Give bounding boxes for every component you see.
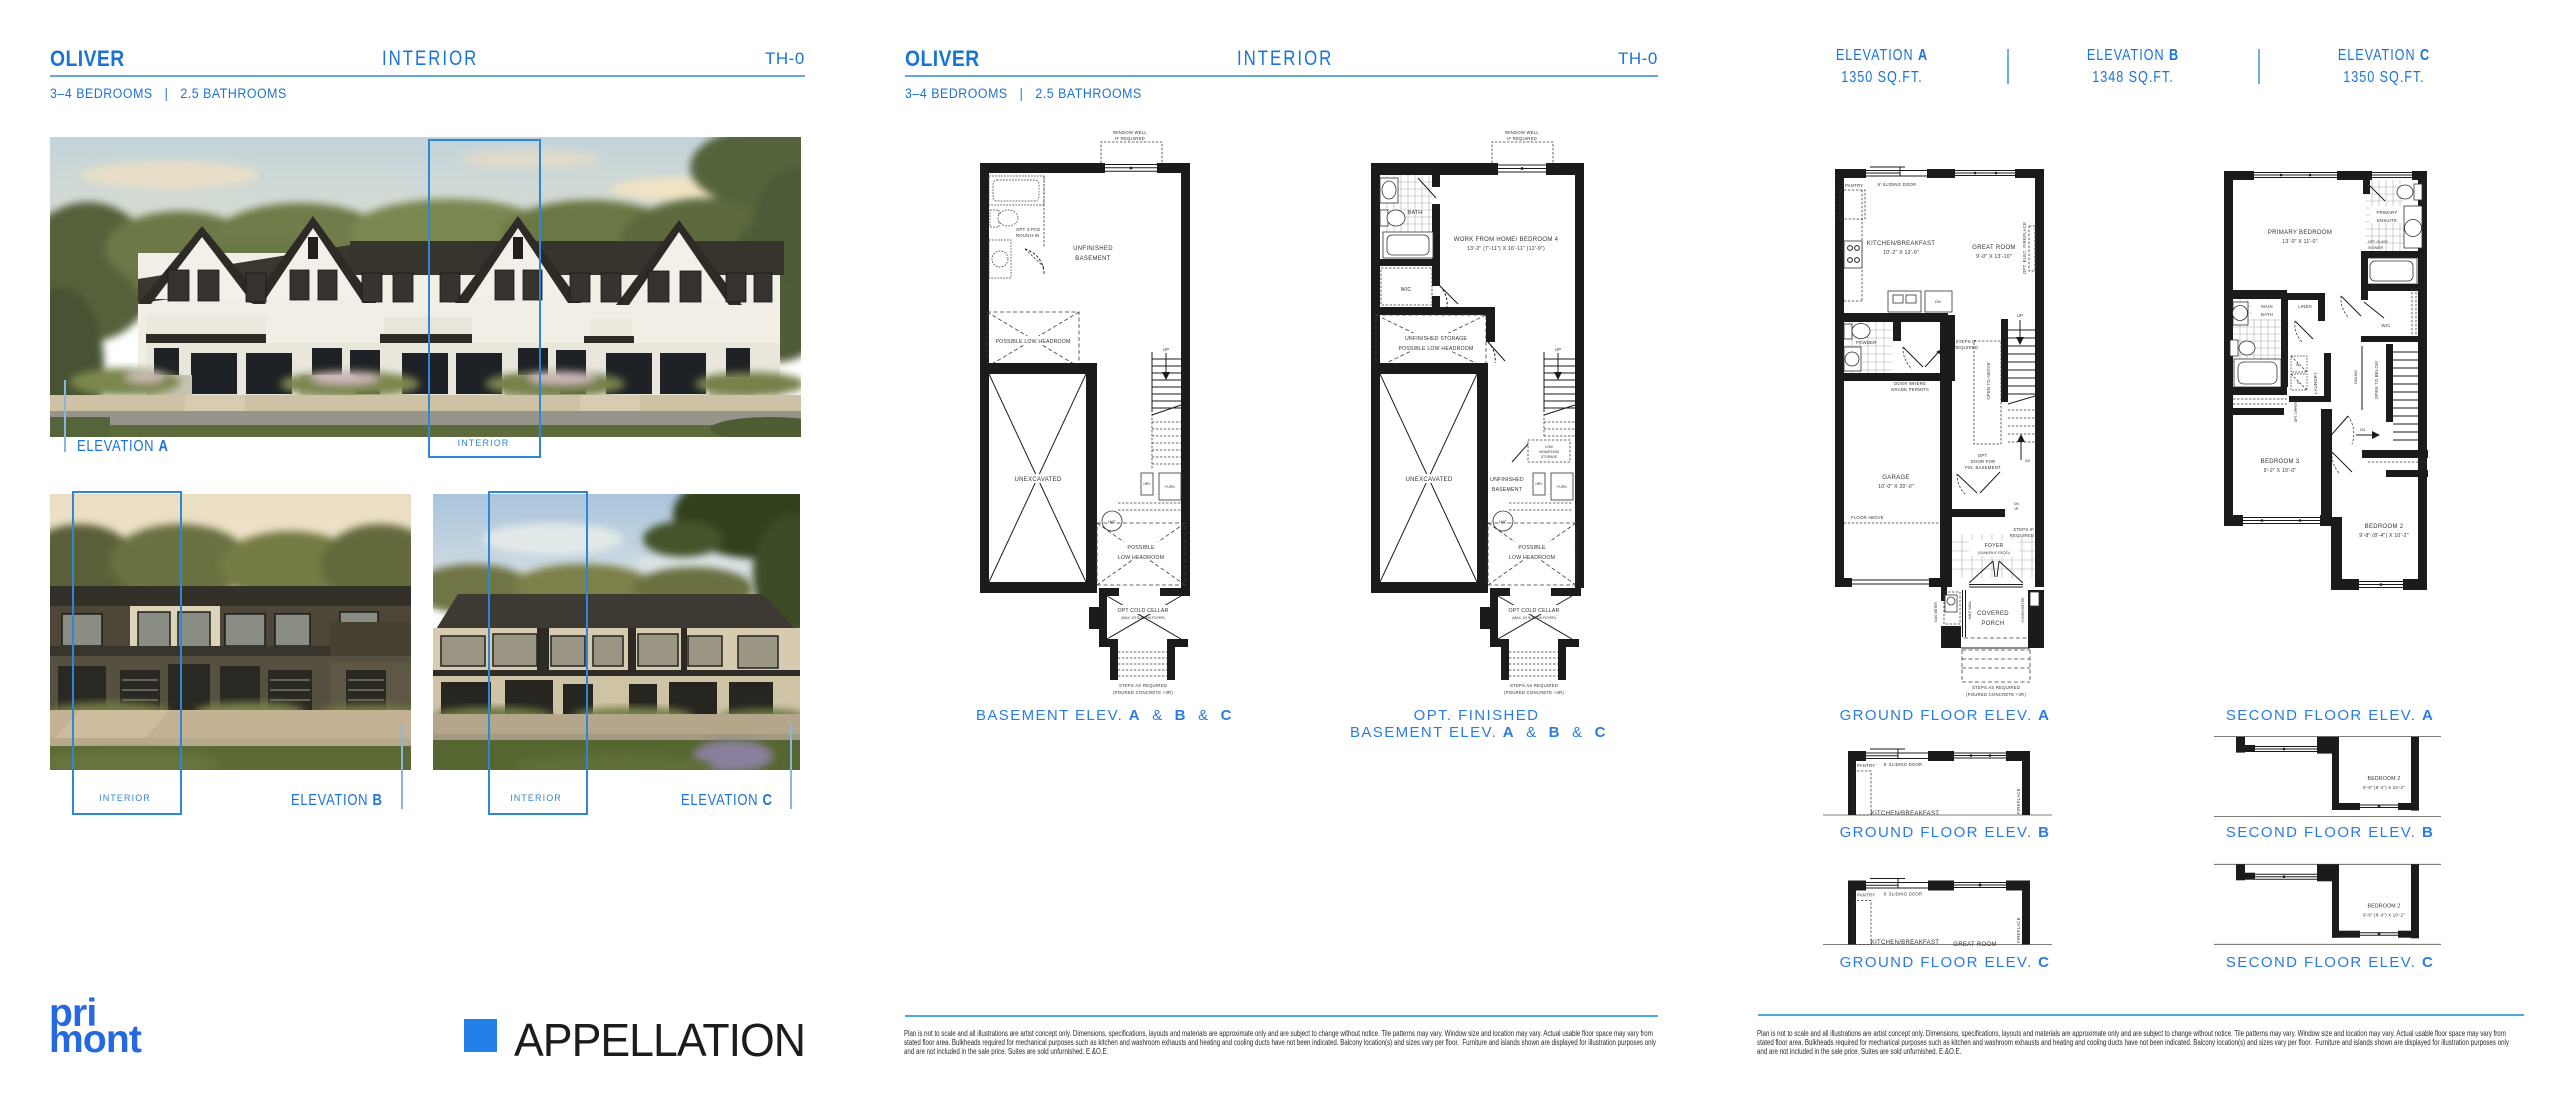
svg-text:9'-8" (8'-4") X 10'-2": 9'-8" (8'-4") X 10'-2" xyxy=(2359,533,2409,539)
svg-text:DOOR FOR: DOOR FOR xyxy=(1971,459,1996,464)
svg-text:(SUNKEN IF REQ'D): (SUNKEN IF REQ'D) xyxy=(1978,551,2010,555)
svg-text:LOW HEADROOM: LOW HEADROOM xyxy=(1118,555,1164,561)
svg-text:GRADE PERMITS: GRADE PERMITS xyxy=(1891,387,1929,392)
svg-text:KITCHEN/BREAKFAST: KITCHEN/BREAKFAST xyxy=(1871,811,1939,817)
svg-text:STEPS IF: STEPS IF xyxy=(2013,527,2034,532)
svg-text:9'-8" (8'-4") X 10'-2": 9'-8" (8'-4") X 10'-2" xyxy=(2363,913,2405,918)
svg-text:UNEXCAVATED: UNEXCAVATED xyxy=(1406,477,1453,483)
svg-text:IF REQUIRED: IF REQUIRED xyxy=(1115,136,1145,141)
svg-text:RAILING: RAILING xyxy=(2354,370,2358,384)
svg-text:POWDER: POWDER xyxy=(1856,340,1877,345)
svg-text:HALF WALL: HALF WALL xyxy=(1968,601,1972,620)
svg-text:13'-2" (7'-11") X 16'-11" (12': 13'-2" (7'-11") X 16'-11" (12'-9") xyxy=(1467,246,1545,252)
svg-text:FIREPLACE: FIREPLACE xyxy=(2016,788,2021,814)
svg-text:(MAX. 1R SUNKEN FOYER): (MAX. 1R SUNKEN FOYER) xyxy=(1512,616,1556,620)
svg-text:OPEN TO ABOVE: OPEN TO ABOVE xyxy=(1986,362,1991,400)
svg-text:6' SLIDING DOOR: 6' SLIDING DOOR xyxy=(1884,762,1923,767)
svg-text:PANTRY: PANTRY xyxy=(1845,183,1863,188)
svg-text:UNFINISHED STORAGE: UNFINISHED STORAGE xyxy=(1405,336,1467,342)
svg-text:WIC: WIC xyxy=(2382,323,2391,328)
svg-text:FIN. BASEMENT: FIN. BASEMENT xyxy=(1965,465,2001,470)
svg-text:UNFINISHED: UNFINISHED xyxy=(1073,246,1113,252)
svg-text:BATH: BATH xyxy=(1408,210,1422,216)
svg-text:DN: DN xyxy=(2360,428,2365,432)
svg-text:KITCHEN/BREAKFAST: KITCHEN/BREAKFAST xyxy=(1867,241,1935,247)
svg-text:9'-0" X 13'-10": 9'-0" X 13'-10" xyxy=(1976,254,2012,260)
svg-text:MAIN: MAIN xyxy=(2261,304,2273,309)
svg-text:POSSIBLE LOW HEADROOM: POSSIBLE LOW HEADROOM xyxy=(1398,346,1473,352)
svg-text:SHOWER: SHOWER xyxy=(2368,246,2384,250)
svg-text:ENSUITE: ENSUITE xyxy=(2377,218,2397,223)
svg-text:PRIMARY BEDROOM: PRIMARY BEDROOM xyxy=(2268,230,2332,236)
svg-text:9'-8" (8'-4") X 10'-2": 9'-8" (8'-4") X 10'-2" xyxy=(2363,785,2405,790)
svg-text:GARAGE: GARAGE xyxy=(1882,475,1909,481)
svg-text:POSSIBLE LOW HEADROOM: POSSIBLE LOW HEADROOM xyxy=(995,339,1070,345)
svg-text:STEPS IF: STEPS IF xyxy=(1956,339,1977,344)
svg-text:UP: UP xyxy=(1163,347,1169,352)
svg-text:BATH: BATH xyxy=(2261,312,2273,317)
svg-text:OPT. ELEC. FIREPLACE: OPT. ELEC. FIREPLACE xyxy=(2022,222,2027,274)
svg-text:OPT. GLASS: OPT. GLASS xyxy=(2368,240,2389,244)
svg-text:WINDOW WELL: WINDOW WELL xyxy=(1113,130,1147,135)
svg-text:HRV: HRV xyxy=(1535,482,1543,486)
svg-text:BEDROOM 2: BEDROOM 2 xyxy=(2368,776,2401,782)
svg-text:LAUNDRY: LAUNDRY xyxy=(2313,372,2318,394)
svg-text:OPT.: OPT. xyxy=(1978,453,1988,458)
svg-text:UNFINISHED: UNFINISHED xyxy=(1490,477,1524,483)
svg-text:10'-0" X 20'-0": 10'-0" X 20'-0" xyxy=(1878,484,1914,490)
svg-text:POSSIBLE: POSSIBLE xyxy=(1127,545,1155,551)
svg-text:GREAT ROOM: GREAT ROOM xyxy=(1972,245,2015,251)
svg-text:9'-2" X 10'-0": 9'-2" X 10'-0" xyxy=(2264,468,2297,474)
svg-text:BASEMENT: BASEMENT xyxy=(1075,256,1110,262)
svg-text:FIREPLACE: FIREPLACE xyxy=(2016,917,2021,943)
svg-text:OPEN TO BELOW: OPEN TO BELOW xyxy=(2374,360,2379,399)
svg-text:LINEN: LINEN xyxy=(2298,304,2312,309)
svg-text:STEPS AS REQUIRED: STEPS AS REQUIRED xyxy=(1972,685,2020,690)
svg-text:ROUGH-IN: ROUGH-IN xyxy=(1016,233,1039,238)
svg-text:PRIMARY: PRIMARY xyxy=(2377,210,2398,215)
svg-text:6' SLIDING DOOR: 6' SLIDING DOOR xyxy=(1884,892,1923,897)
svg-text:(POURED CONCRETE +3R): (POURED CONCRETE +3R) xyxy=(1966,692,2026,697)
svg-text:(MAX. 1R SUNKEN FOYER): (MAX. 1R SUNKEN FOYER) xyxy=(1121,616,1165,620)
svg-text:10'-2" X 13'-0": 10'-2" X 13'-0" xyxy=(1883,250,1919,256)
svg-text:1R: 1R xyxy=(2014,507,2019,511)
svg-text:6' SLIDING DOOR: 6' SLIDING DOOR xyxy=(1878,182,1917,187)
svg-text:WINDOW WELL: WINDOW WELL xyxy=(1505,130,1539,135)
svg-text:HYDRO METER: HYDRO METER xyxy=(2021,597,2025,623)
svg-text:UNEXCAVATED: UNEXCAVATED xyxy=(1015,477,1062,483)
svg-text:BEDROOM 2: BEDROOM 2 xyxy=(2368,904,2401,910)
svg-text:DOOR WHERE: DOOR WHERE xyxy=(1894,381,1926,386)
svg-text:13'-0" X 11'-0": 13'-0" X 11'-0" xyxy=(2282,239,2317,245)
svg-text:STORAGE: STORAGE xyxy=(1541,455,1558,459)
svg-text:WIC: WIC xyxy=(1401,287,1412,293)
svg-text:OPT 3-PCE: OPT 3-PCE xyxy=(1016,227,1040,232)
svg-text:BEDROOM 2: BEDROOM 2 xyxy=(2365,524,2404,530)
svg-text:STEPS AS REQUIRED: STEPS AS REQUIRED xyxy=(1119,683,1167,688)
svg-text:STEPS AS REQUIRED: STEPS AS REQUIRED xyxy=(1510,683,1558,688)
svg-text:HRV: HRV xyxy=(1143,482,1151,486)
svg-text:WORK FROM HOME/ BEDROOM 4: WORK FROM HOME/ BEDROOM 4 xyxy=(1454,237,1559,243)
svg-text:GAS METER: GAS METER xyxy=(1934,601,1938,622)
svg-text:GREAT ROOM: GREAT ROOM xyxy=(1953,942,1996,948)
svg-text:UP: UP xyxy=(1555,347,1561,352)
svg-text:BASEMENT: BASEMENT xyxy=(1492,487,1523,493)
svg-text:OPT COLD CELLAR: OPT COLD CELLAR xyxy=(1508,608,1559,614)
svg-text:DN: DN xyxy=(2014,502,2019,506)
svg-text:UP: UP xyxy=(2017,313,2023,318)
svg-text:(POURED CONCRETE +3R): (POURED CONCRETE +3R) xyxy=(1504,690,1564,695)
svg-text:LOW HEADROOM: LOW HEADROOM xyxy=(1509,555,1555,561)
svg-text:OPT. UPPERS: OPT. UPPERS xyxy=(2294,399,2298,422)
svg-text:OPT COLD CELLAR: OPT COLD CELLAR xyxy=(1117,608,1168,614)
svg-text:FLOOR ABOVE: FLOOR ABOVE xyxy=(1851,515,1884,520)
svg-text:LOW: LOW xyxy=(1545,445,1554,449)
svg-text:KITCHEN/BREAKFAST: KITCHEN/BREAKFAST xyxy=(1871,940,1939,946)
svg-text:DN: DN xyxy=(2025,459,2030,463)
svg-text:(POURED CONCRETE +3R): (POURED CONCRETE +3R) xyxy=(1113,690,1173,695)
svg-text:FURN: FURN xyxy=(1557,485,1567,489)
svg-text:HEADROOM: HEADROOM xyxy=(1539,450,1559,454)
svg-text:BEDROOM 3: BEDROOM 3 xyxy=(2261,459,2300,465)
svg-text:PANTRY: PANTRY xyxy=(1857,893,1875,898)
svg-text:POSSIBLE: POSSIBLE xyxy=(1518,545,1546,551)
svg-text:DW: DW xyxy=(1935,300,1941,304)
svg-text:COVERED: COVERED xyxy=(1977,611,2009,617)
svg-text:PANTRY: PANTRY xyxy=(1857,763,1875,768)
svg-text:FURN: FURN xyxy=(1165,485,1175,489)
svg-text:PORCH: PORCH xyxy=(1981,621,2004,627)
svg-text:IF REQUIRED: IF REQUIRED xyxy=(1507,136,1537,141)
svg-text:REQUIRED: REQUIRED xyxy=(1954,345,1978,350)
svg-text:FOYER: FOYER xyxy=(1985,543,2004,549)
